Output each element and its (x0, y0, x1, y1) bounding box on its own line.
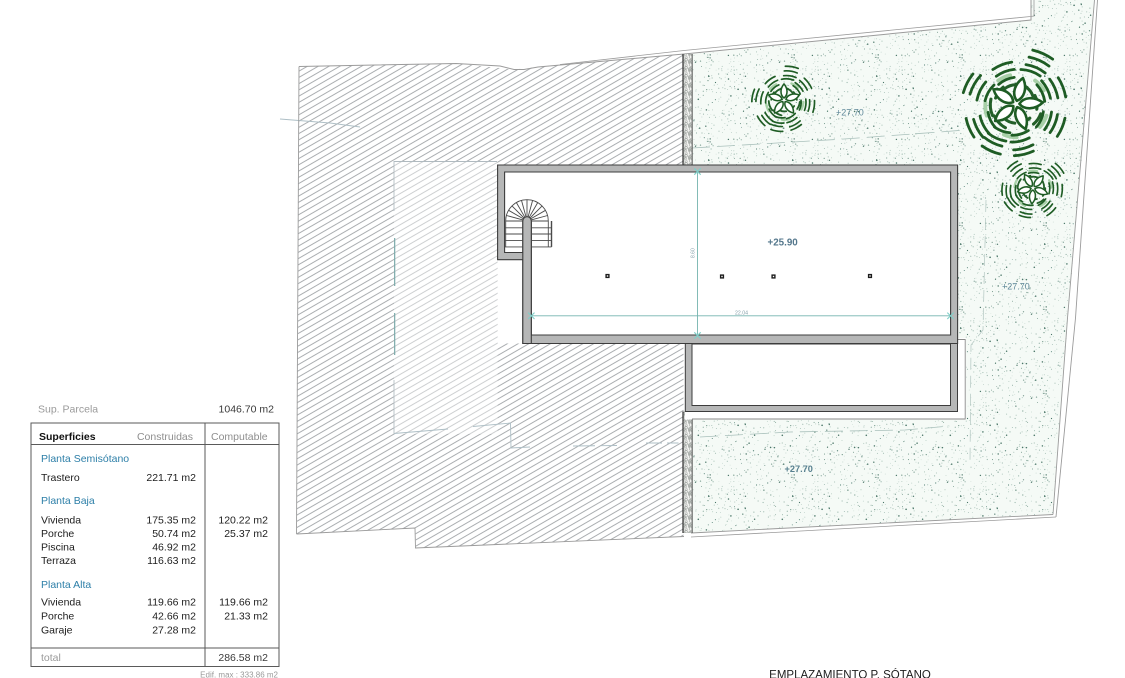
svg-text:Vivienda: Vivienda (41, 515, 81, 527)
svg-text:119.66 m2: 119.66 m2 (219, 597, 268, 609)
svg-text:+27.70: +27.70 (1002, 282, 1030, 292)
svg-text:1046.70 m2: 1046.70 m2 (219, 404, 275, 416)
svg-text:+25.90: +25.90 (768, 237, 799, 248)
svg-text:EMPLAZAMIENTO P. SÓTANO: EMPLAZAMIENTO P. SÓTANO (769, 669, 931, 678)
svg-text:27.28 m2: 27.28 m2 (152, 625, 196, 637)
svg-text:22.04: 22.04 (735, 310, 748, 316)
svg-text:Computable: Computable (211, 431, 268, 443)
svg-text:Porche: Porche (41, 611, 74, 623)
svg-text:Vivienda: Vivienda (41, 597, 81, 609)
svg-text:Garaje: Garaje (41, 625, 73, 637)
svg-text:42.66 m2: 42.66 m2 (152, 611, 196, 623)
svg-text:46.92 m2: 46.92 m2 (152, 542, 196, 554)
svg-text:Planta Baja: Planta Baja (41, 495, 95, 507)
svg-text:175.35 m2: 175.35 m2 (146, 515, 196, 527)
svg-text:Planta Semisótano: Planta Semisótano (41, 453, 129, 465)
svg-text:+27.70: +27.70 (836, 108, 864, 118)
svg-text:8.60: 8.60 (691, 248, 697, 258)
svg-text:Sup. Parcela: Sup. Parcela (38, 404, 98, 416)
svg-text:21.33 m2: 21.33 m2 (224, 611, 268, 623)
svg-text:Terraza: Terraza (41, 555, 76, 567)
svg-text:50.74 m2: 50.74 m2 (152, 528, 196, 540)
svg-text:total: total (41, 652, 61, 664)
svg-text:286.58 m2: 286.58 m2 (218, 652, 268, 664)
svg-text:Planta Alta: Planta Alta (41, 579, 91, 591)
svg-text:Superficies: Superficies (39, 431, 96, 443)
svg-text:119.66 m2: 119.66 m2 (147, 597, 196, 609)
svg-text:120.22 m2: 120.22 m2 (218, 515, 268, 527)
svg-text:Edif. max : 333.86 m2: Edif. max : 333.86 m2 (200, 671, 278, 678)
svg-text:221.71 m2: 221.71 m2 (146, 472, 196, 484)
svg-text:Trastero: Trastero (41, 472, 80, 484)
svg-text:Construidas: Construidas (137, 431, 193, 443)
svg-text:25.37 m2: 25.37 m2 (224, 528, 268, 540)
svg-text:116.63 m2: 116.63 m2 (147, 555, 196, 567)
svg-text:Piscina: Piscina (41, 542, 75, 554)
svg-text:Porche: Porche (41, 528, 74, 540)
svg-text:+27.70: +27.70 (785, 464, 813, 474)
